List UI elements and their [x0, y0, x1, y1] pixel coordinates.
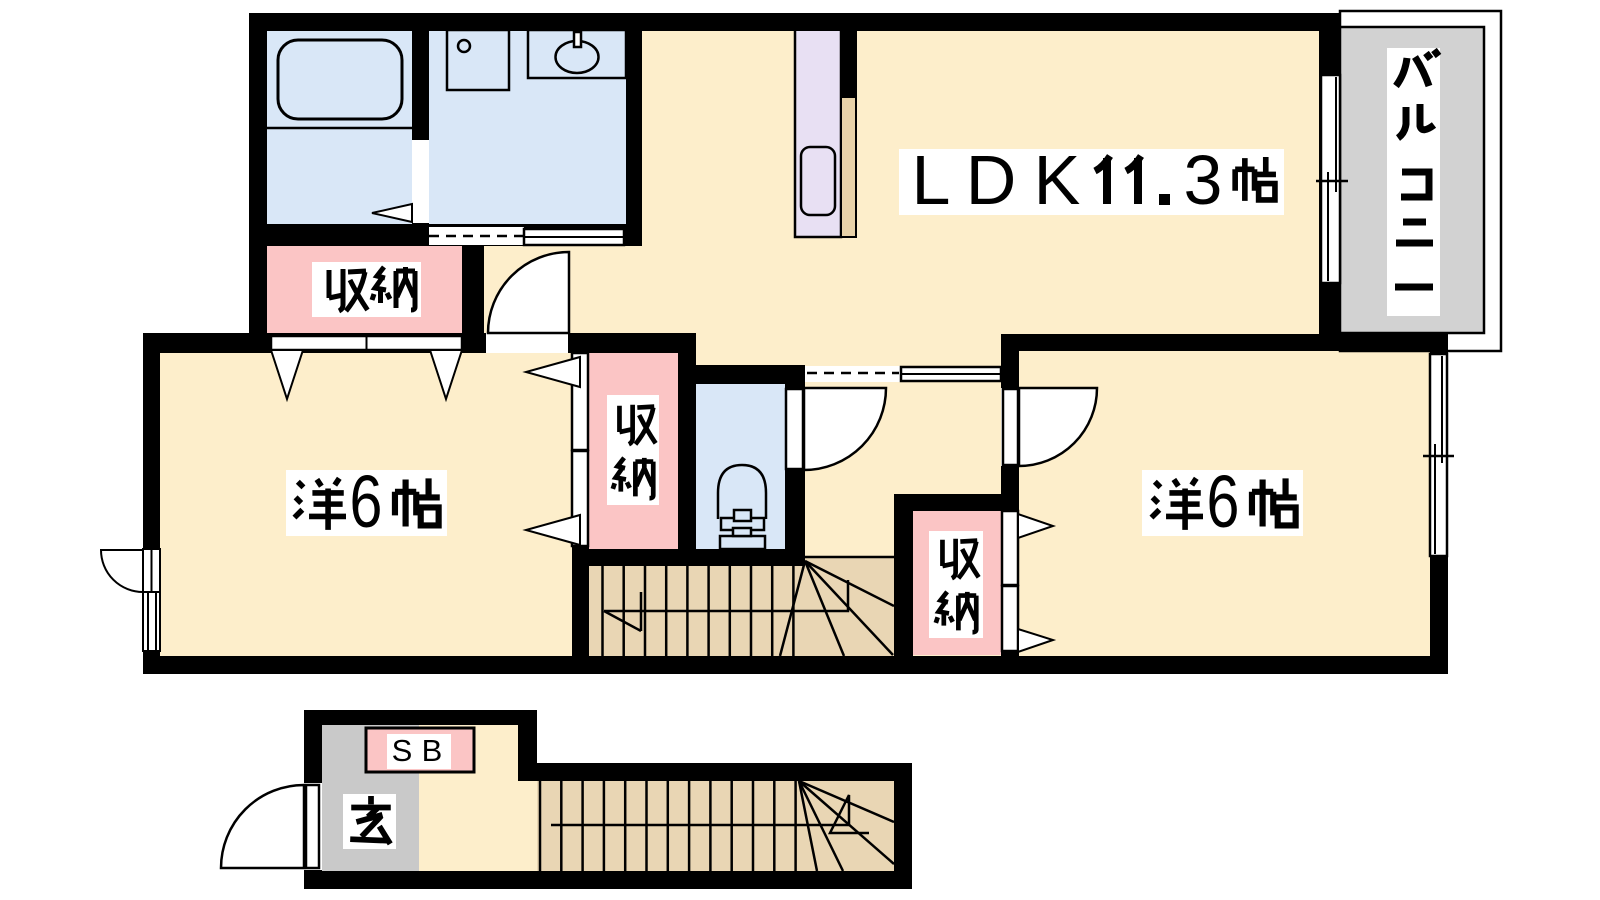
svg-text:L: L: [912, 141, 951, 219]
svg-text:K: K: [1034, 141, 1081, 219]
svg-text:S: S: [392, 733, 413, 768]
svg-text:B: B: [422, 733, 443, 768]
svg-text:6: 6: [350, 461, 383, 544]
svg-text:6: 6: [1207, 461, 1240, 544]
svg-text:D: D: [966, 141, 1017, 219]
svg-text:3: 3: [1184, 141, 1223, 219]
